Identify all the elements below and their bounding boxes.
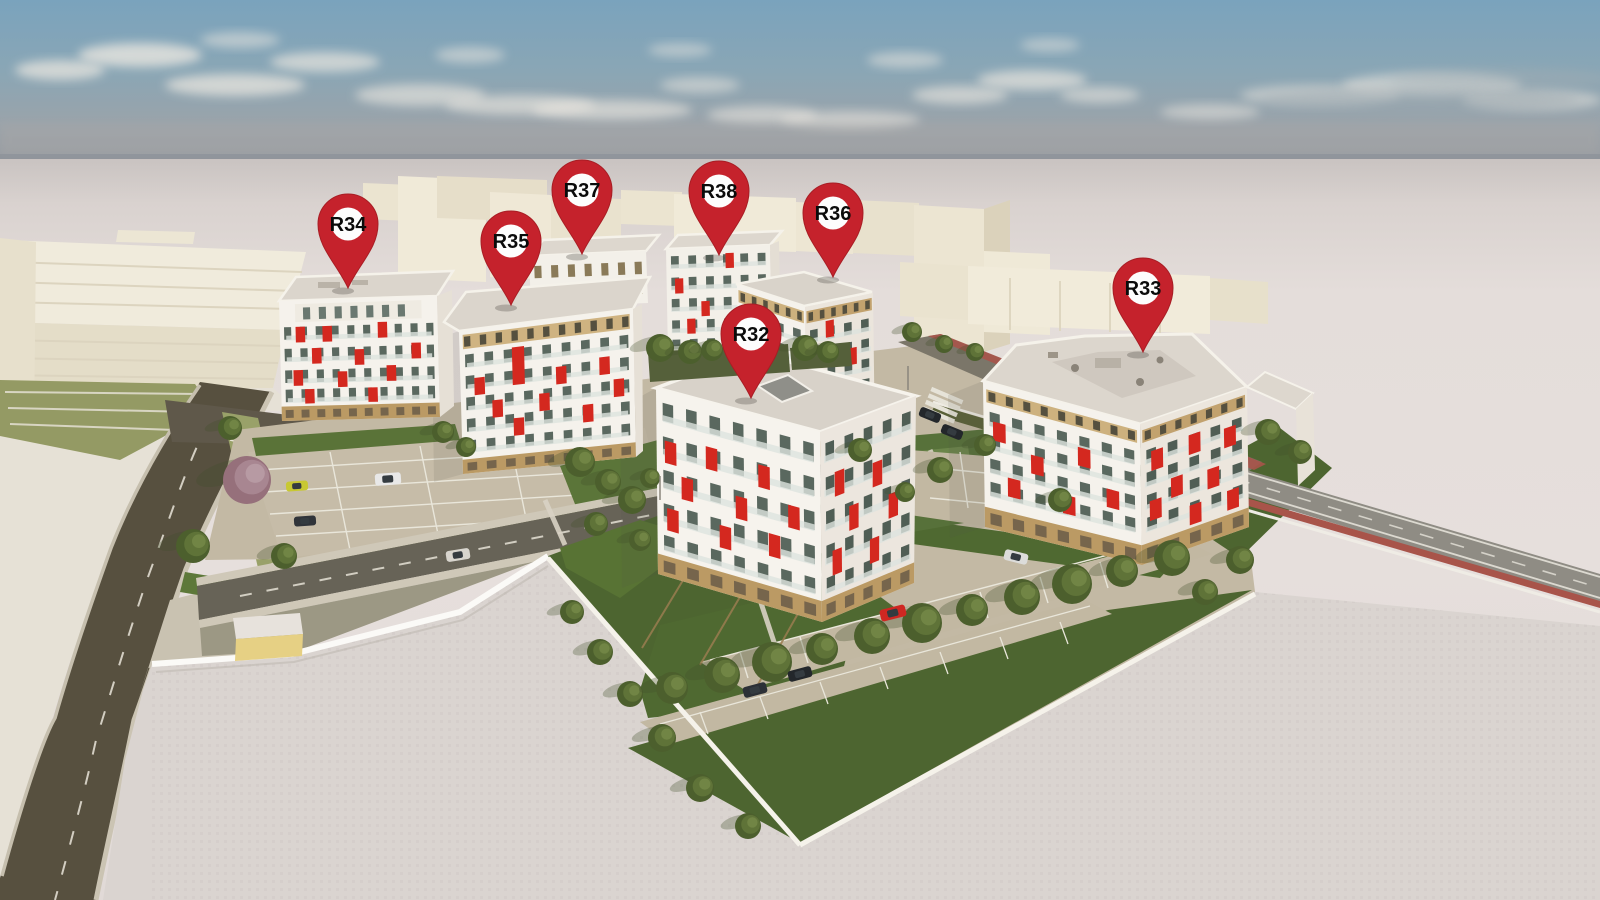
svg-text:R35: R35 [493,231,530,253]
svg-text:R32: R32 [733,324,770,346]
svg-text:R36: R36 [815,203,852,225]
svg-text:R34: R34 [330,214,368,236]
svg-text:R37: R37 [564,180,601,202]
svg-text:R33: R33 [1125,278,1162,300]
svg-text:R38: R38 [701,181,738,203]
